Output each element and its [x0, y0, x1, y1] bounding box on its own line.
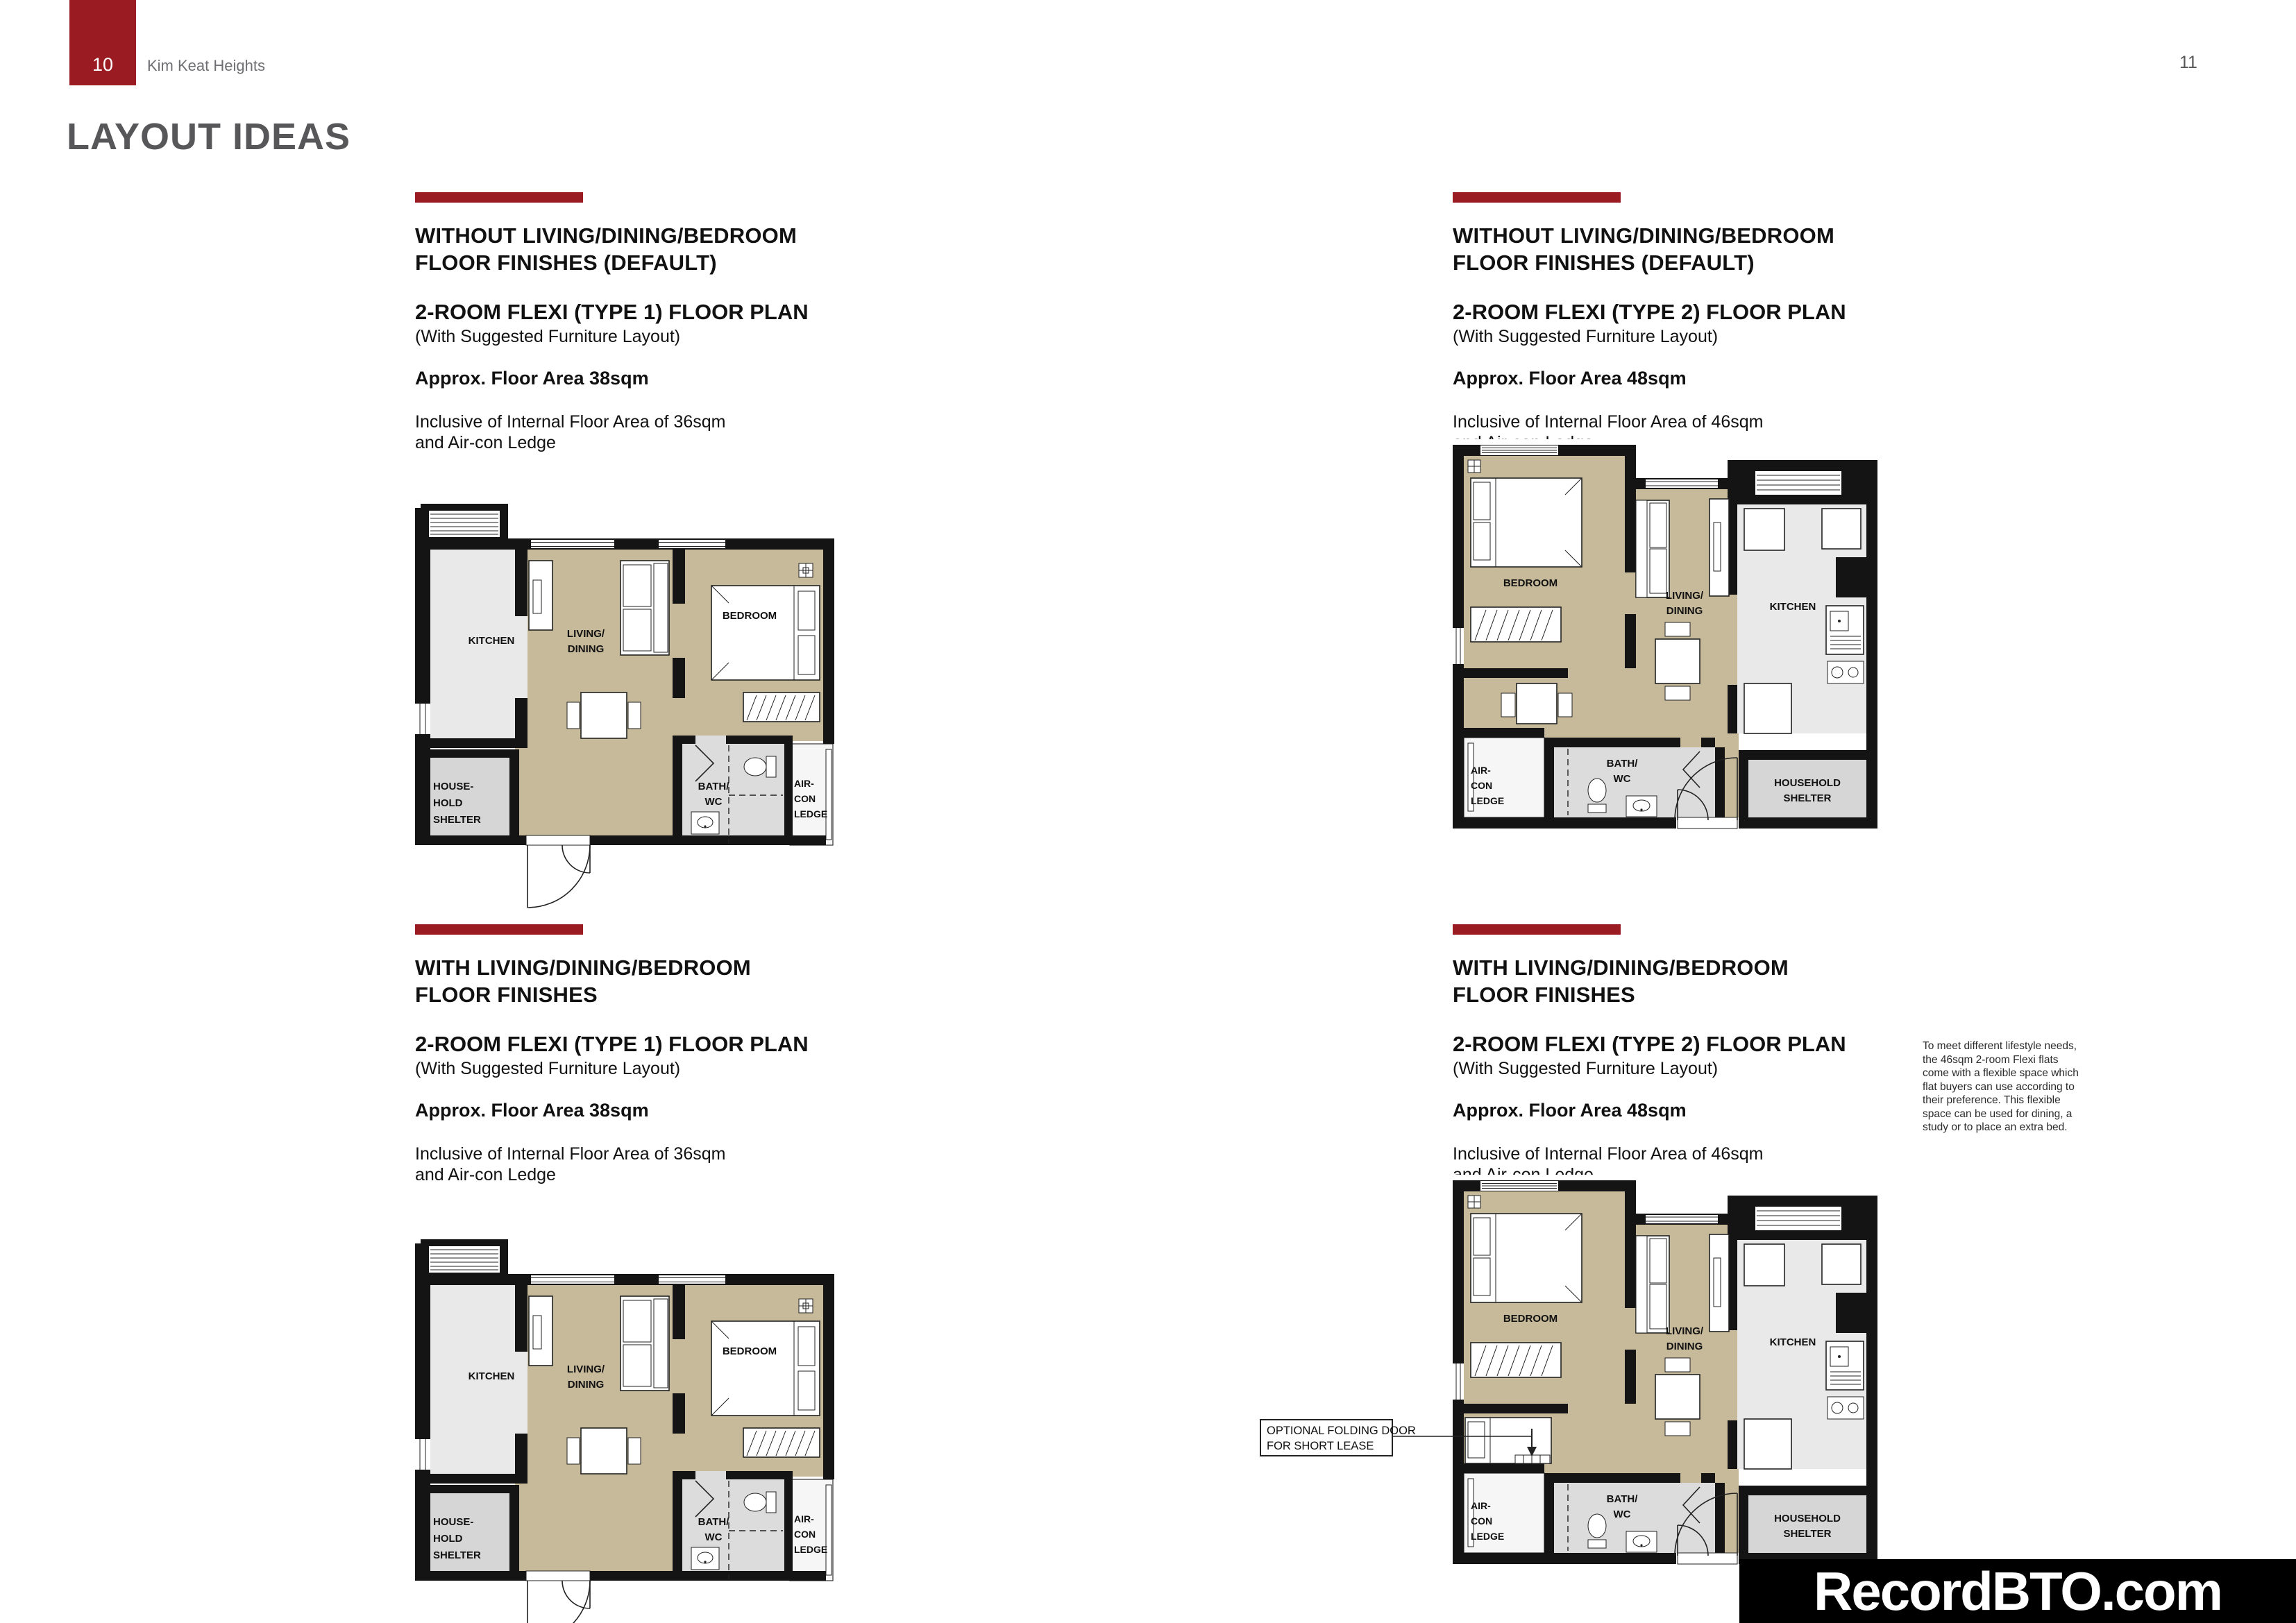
finish-heading-line1: WITH LIVING/DINING/BEDROOM	[415, 954, 943, 981]
note-line: their preference. This flexible	[1923, 1094, 2103, 1107]
area-note-line1: Inclusive of Internal Floor Area of 36sq…	[415, 411, 943, 432]
plan-heading: 2-ROOM FLEXI (TYPE 1) FLOOR PLAN	[415, 300, 943, 325]
finish-heading-line1: WITHOUT LIVING/DINING/BEDROOM	[1453, 222, 1980, 249]
plan-subheading: (With Suggested Furniture Layout)	[1453, 1059, 1980, 1079]
plan-subheading: (With Suggested Furniture Layout)	[415, 327, 943, 347]
area-note-line1: Inclusive of Internal Floor Area of 46sq…	[1453, 411, 1980, 432]
watermark-text: RecordBTO.com	[1814, 1560, 2222, 1623]
floorplan-type2-default	[1447, 439, 1891, 897]
finish-heading-line1: WITH LIVING/DINING/BEDROOM	[1453, 954, 1980, 981]
accent-bar	[415, 192, 583, 203]
panel-bottom-right-text: WITH LIVING/DINING/BEDROOM FLOOR FINISHE…	[1453, 924, 1980, 1185]
floor-area-heading: Approx. Floor Area 48sqm	[1453, 368, 1980, 389]
note-line: To meet different lifestyle needs,	[1923, 1039, 2103, 1053]
finish-heading-line2: FLOOR FINISHES (DEFAULT)	[415, 249, 943, 276]
finish-heading-line2: FLOOR FINISHES (DEFAULT)	[1453, 249, 1980, 276]
accent-bar	[415, 924, 583, 935]
plan-heading: 2-ROOM FLEXI (TYPE 2) FLOOR PLAN	[1453, 1032, 1980, 1057]
plan-heading: 2-ROOM FLEXI (TYPE 2) FLOOR PLAN	[1453, 300, 1980, 325]
panel-bottom-left-text: WITH LIVING/DINING/BEDROOM FLOOR FINISHE…	[415, 924, 943, 1185]
accent-bar	[1453, 192, 1621, 203]
flexible-space-note: To meet different lifestyle needs, the 4…	[1923, 1039, 2103, 1135]
plan-heading: 2-ROOM FLEXI (TYPE 1) FLOOR PLAN	[415, 1032, 943, 1057]
floor-area-heading: Approx. Floor Area 38sqm	[415, 368, 943, 389]
annotation-line1: OPTIONAL FOLDING DOOR	[1267, 1425, 1416, 1437]
project-name: Kim Keat Heights	[147, 57, 265, 75]
floorplan-type2-finishes	[1447, 1175, 1891, 1623]
note-line: study or to place an extra bed.	[1923, 1121, 2103, 1135]
annotation-leader-line	[1392, 1436, 1532, 1443]
annotation-line2: FOR SHORT LEASE	[1267, 1440, 1374, 1452]
watermark-banner: RecordBTO.com	[1739, 1559, 2296, 1623]
floor-area-heading: Approx. Floor Area 38sqm	[415, 1100, 943, 1121]
floorplan-type1-finishes	[415, 1230, 840, 1623]
note-line: flat buyers can use according to	[1923, 1080, 2103, 1094]
plan-subheading: (With Suggested Furniture Layout)	[1453, 327, 1980, 347]
plan-subheading: (With Suggested Furniture Layout)	[415, 1059, 943, 1079]
area-note-line1: Inclusive of Internal Floor Area of 46sq…	[1453, 1144, 1980, 1164]
finish-heading-line2: FLOOR FINISHES	[415, 981, 943, 1008]
left-page-number-box: 10	[69, 0, 136, 85]
note-line: space can be used for dining, a	[1923, 1107, 2103, 1121]
note-line: come with a flexible space which	[1923, 1067, 2103, 1080]
finish-heading-line1: WITHOUT LIVING/DINING/BEDROOM	[415, 222, 943, 249]
left-page-number: 10	[92, 54, 113, 76]
brochure-page: 10 Kim Keat Heights LAYOUT IDEAS 11 WITH…	[0, 0, 2296, 1623]
note-line: the 46sqm 2-room Flexi flats	[1923, 1053, 2103, 1067]
area-note-line2: and Air-con Ledge	[415, 1164, 943, 1185]
area-note-line1: Inclusive of Internal Floor Area of 36sq…	[415, 1144, 943, 1164]
accent-bar	[1453, 924, 1621, 935]
panel-top-left-text: WITHOUT LIVING/DINING/BEDROOM FLOOR FINI…	[415, 192, 943, 453]
right-page-number: 11	[2179, 53, 2197, 73]
floor-area-heading: Approx. Floor Area 48sqm	[1453, 1100, 1980, 1121]
floorplan-type1-default	[415, 494, 840, 910]
area-note-line2: and Air-con Ledge	[415, 432, 943, 453]
panel-top-right-text: WITHOUT LIVING/DINING/BEDROOM FLOOR FINI…	[1453, 192, 1980, 453]
folding-door-annotation: OPTIONAL FOLDING DOOR FOR SHORT LEASE	[1256, 1416, 1555, 1468]
finish-heading-line2: FLOOR FINISHES	[1453, 981, 1980, 1008]
page-title: LAYOUT IDEAS	[67, 115, 351, 158]
